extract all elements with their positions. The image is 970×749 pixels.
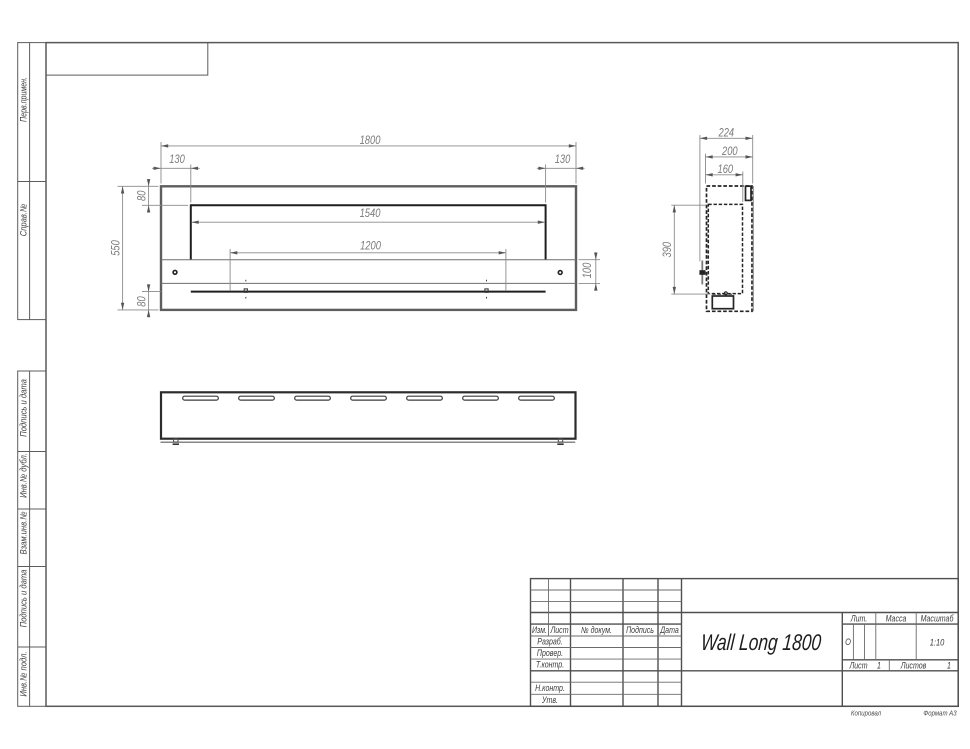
svg-text:Масштаб: Масштаб: [921, 614, 954, 624]
svg-text:О: О: [845, 637, 851, 647]
svg-text:Подпись: Подпись: [626, 625, 654, 635]
svg-text:390: 390: [661, 242, 674, 258]
svg-text:100: 100: [581, 263, 594, 279]
svg-text:200: 200: [721, 145, 738, 158]
svg-text:Подпись и дата: Подпись и дата: [18, 569, 29, 627]
svg-text:Т.контр.: Т.контр.: [536, 660, 564, 670]
svg-text:Инв.№ дубл.: Инв.№ дубл.: [18, 453, 29, 498]
svg-text:Формат А3: Формат А3: [923, 710, 956, 718]
svg-text:Копировал: Копировал: [851, 710, 881, 718]
svg-text:№ докум.: № докум.: [581, 625, 612, 635]
svg-text:1200: 1200: [360, 239, 381, 252]
svg-text:Изм.: Изм.: [532, 625, 547, 635]
svg-text:1800: 1800: [360, 134, 381, 147]
svg-text:160: 160: [718, 163, 734, 176]
svg-text:Лист: Лист: [849, 661, 868, 671]
svg-text:1:10: 1:10: [930, 638, 945, 648]
svg-text:Инв.№ подл.: Инв.№ подл.: [18, 651, 29, 696]
svg-text:Взам.инв.№: Взам.инв.№: [18, 512, 29, 555]
svg-text:130: 130: [555, 153, 571, 166]
svg-text:Лист: Лист: [550, 625, 569, 635]
svg-text:80: 80: [135, 296, 148, 306]
svg-text:80: 80: [135, 191, 148, 201]
svg-text:Лит.: Лит.: [850, 614, 867, 624]
svg-text:1: 1: [947, 661, 951, 671]
svg-text:Утв.: Утв.: [541, 695, 558, 705]
svg-text:Масса: Масса: [886, 614, 907, 624]
svg-text:Дата: Дата: [659, 625, 679, 635]
svg-text:1: 1: [877, 661, 881, 671]
svg-text:Н.контр.: Н.контр.: [535, 683, 565, 693]
svg-text:224: 224: [718, 126, 735, 139]
svg-text:Подпись и дата: Подпись и дата: [18, 379, 29, 437]
svg-text:1540: 1540: [360, 207, 381, 220]
svg-text:Wall Long 1800: Wall Long 1800: [700, 631, 823, 656]
svg-text:130: 130: [169, 153, 185, 166]
svg-text:550: 550: [109, 240, 122, 256]
svg-text:Справ.№: Справ.№: [18, 204, 29, 237]
svg-text:Провер.: Провер.: [537, 648, 563, 658]
svg-text:Перв.примен.: Перв.примен.: [19, 77, 29, 122]
svg-text:Разраб.: Разраб.: [537, 637, 562, 647]
svg-text:Листов: Листов: [900, 661, 926, 671]
